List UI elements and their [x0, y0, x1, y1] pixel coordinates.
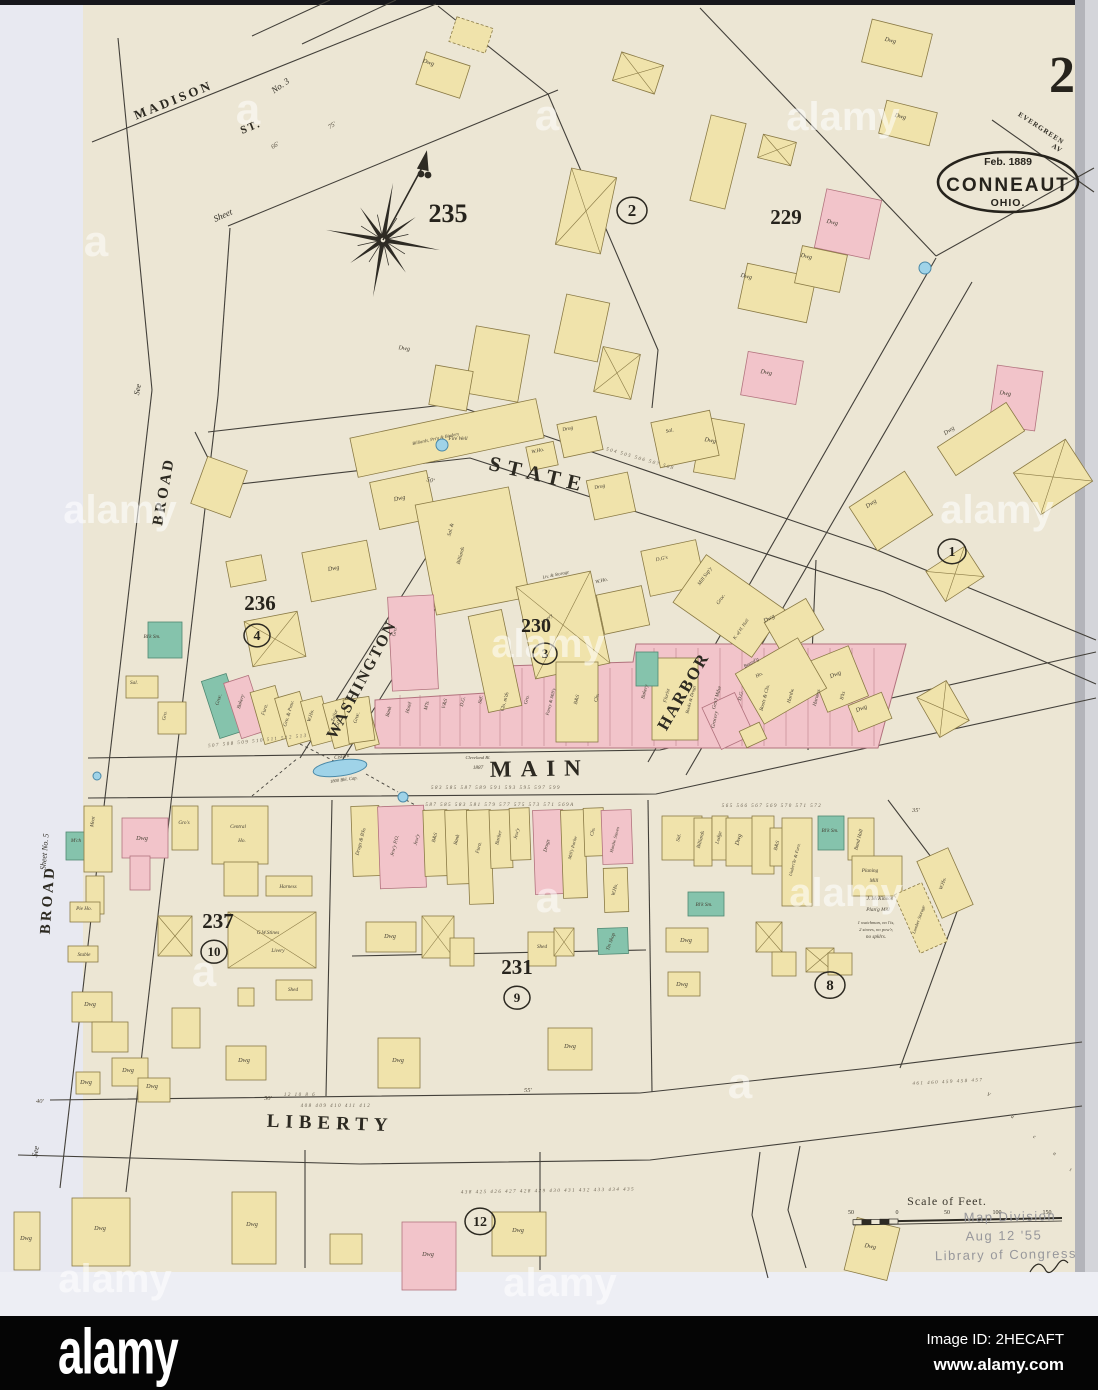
scale-segment: [880, 1219, 889, 1224]
building-label: Harness: [278, 884, 296, 890]
building-rect: [772, 952, 796, 976]
building-rect: [92, 1022, 128, 1052]
building-label: Dwg: [135, 835, 148, 842]
building-rect: [636, 652, 658, 686]
block-number: 2: [628, 201, 637, 220]
building: [422, 916, 454, 958]
address-numbers: 408 409 410 411 412: [301, 1104, 372, 1109]
map-date: Feb. 1889: [984, 156, 1032, 168]
building-rect: [138, 1078, 170, 1102]
building: [772, 952, 796, 976]
building-rect: [465, 326, 530, 402]
building-label: Pie Ho.: [75, 906, 92, 912]
building-rect: [429, 365, 473, 411]
map-state: OHIO.: [991, 197, 1026, 209]
building: [228, 912, 316, 968]
building: [232, 1192, 276, 1264]
building-label: M'ch: [70, 838, 82, 844]
building: [148, 622, 182, 658]
building-rect: [388, 595, 439, 691]
library-stamp: Aug 12 '55: [965, 1227, 1042, 1243]
alamy-footer-bar: alamy Image ID: 2HECAFT www.alamy.com: [0, 1316, 1098, 1390]
scale-segment: [889, 1219, 898, 1224]
building: [130, 856, 150, 890]
alamy-watermark-letter: a: [728, 1059, 753, 1108]
street-name: MAIN: [490, 755, 590, 782]
dimension-label: 40': [36, 1098, 45, 1105]
building-label: Bl'k Sm.: [822, 828, 839, 834]
building-label: G.W.Stines: [257, 930, 280, 936]
well-dot: [919, 262, 931, 274]
building-label: Bl'k Sm.: [696, 902, 713, 908]
building: [429, 365, 473, 411]
building-label: Dwg: [19, 1235, 32, 1242]
building-label: Stable: [78, 952, 92, 958]
photo-top-edge: [0, 0, 1098, 5]
building-rect: [172, 806, 198, 850]
map-city: CONNEAUT: [946, 175, 1070, 196]
block-number: 231: [501, 955, 533, 979]
building: [172, 806, 198, 850]
dimension-label: 50': [264, 1095, 273, 1102]
building-rect: [351, 806, 381, 877]
building-label: Livery: [270, 948, 285, 954]
sanborn-map: MADISONST.No. 3STATEMAINLIBERTYBROADBROA…: [0, 0, 1098, 1390]
alamy-watermark: alamy: [58, 1257, 172, 1301]
library-stamp: Library of Congress: [935, 1246, 1077, 1263]
building-rect: [330, 1234, 362, 1264]
building-label: Dwg: [679, 937, 692, 944]
alamy-watermark-letter: a: [84, 217, 109, 266]
alamy-watermark-letter: a: [236, 85, 261, 134]
building: [351, 806, 381, 877]
building-rect: [84, 806, 112, 872]
building-label: Sal.: [130, 680, 138, 686]
building-label: Gro's: [178, 820, 189, 826]
scale-tick: 0: [896, 1210, 899, 1216]
building-rect: [70, 902, 100, 922]
scale-segment: [853, 1220, 862, 1225]
building-rect: [378, 805, 427, 889]
building: [212, 806, 268, 864]
footer-image-info: Image ID: 2HECAFT www.alamy.com: [926, 1329, 1064, 1377]
building: [741, 351, 804, 404]
building: [388, 595, 439, 691]
image-id-text: Image ID: 2HECAFT: [926, 1329, 1064, 1352]
building-rect: [130, 856, 150, 890]
building-label: Dwg: [245, 1221, 258, 1228]
well-dot: [398, 792, 408, 802]
building-label: Dwg: [675, 981, 688, 988]
building: [378, 805, 427, 889]
alamy-url-text: www.alamy.com: [926, 1352, 1064, 1378]
building-rect: [212, 806, 268, 864]
street-name: LIBERTY: [266, 1111, 394, 1136]
block-number: 229: [770, 205, 802, 229]
building-rect: [72, 1198, 130, 1266]
building-rect: [586, 472, 635, 520]
building: [554, 928, 574, 956]
alamy-watermark: alamy: [63, 488, 177, 532]
building-rect: [492, 1212, 546, 1256]
address-numbers: 587 585 583 581 579 577 575 573 571 569A: [425, 803, 574, 808]
building: [330, 1234, 362, 1264]
block-number: 8: [826, 978, 834, 994]
building: [138, 1078, 170, 1102]
alamy-watermark-letter: a: [535, 91, 560, 140]
building-label: Bl'k Sm.: [144, 634, 161, 640]
sheet-page-number: 2: [1049, 47, 1075, 104]
building-label: Dwg: [421, 1251, 434, 1258]
building-label: Dwg: [237, 1057, 250, 1064]
building-label: Shed: [288, 987, 298, 993]
alamy-watermark-letter: a: [536, 873, 561, 922]
library-stamp: Map Division: [964, 1208, 1057, 1225]
compass-north-fleur: [418, 171, 425, 178]
building-label: Dwg: [121, 1067, 134, 1074]
building: [70, 902, 100, 922]
building-label: Dwg: [391, 1057, 404, 1064]
building-rect: [172, 1008, 200, 1048]
address-numbers: 12 10 8 6: [284, 1093, 316, 1098]
alamy-watermark: alamy: [503, 1261, 617, 1305]
building-rect: [814, 189, 881, 259]
building-rect: [232, 1192, 276, 1264]
scale-segment: [871, 1219, 880, 1224]
block-number: 12: [473, 1215, 487, 1230]
building-rect: [450, 938, 474, 966]
compass-north-fleur: [425, 172, 432, 179]
building-label: Fire Well: [447, 436, 468, 442]
alamy-watermark: alamy: [789, 871, 903, 915]
building-rect: [741, 351, 804, 404]
building: [172, 1008, 200, 1048]
building: [84, 806, 112, 872]
screenshot-stage: MADISONST.No. 3STATEMAINLIBERTYBROADBROA…: [0, 0, 1098, 1390]
building-label: Dwg: [383, 933, 396, 940]
building-label: Ho.: [237, 838, 246, 844]
block-number: 1: [949, 545, 956, 560]
alamy-watermark: alamy: [491, 622, 605, 666]
building: [158, 916, 192, 956]
dimension-label: 35': [911, 807, 921, 814]
building: [465, 326, 530, 402]
page-edge-right: [1085, 0, 1098, 1390]
well-dot: [93, 772, 101, 780]
address-numbers: 565 566 567 569 570 571 572: [722, 804, 823, 809]
building: [224, 862, 258, 896]
page-edge-right-shadow: [1075, 0, 1085, 1390]
alamy-watermark-letter: a: [192, 947, 217, 996]
alamy-watermark: alamy: [786, 95, 900, 139]
building-label: Dwg: [145, 1083, 158, 1090]
block-number: 237: [202, 909, 234, 933]
building: [238, 988, 254, 1006]
building: [92, 1022, 128, 1052]
building-label: Dwg: [83, 1001, 96, 1008]
building: [492, 1212, 546, 1256]
scale-tick: 50: [848, 1210, 854, 1216]
building-label: Central: [230, 824, 246, 830]
building-label: Cleveland Bl.: [465, 755, 490, 760]
building-label: no spklrs.: [866, 934, 886, 940]
building-rect: [238, 988, 254, 1006]
building-rect: [148, 622, 182, 658]
dimension-label: 55': [524, 1087, 533, 1094]
block-number: 4: [254, 629, 261, 644]
building-label: Dwg: [563, 1043, 576, 1050]
building-rect: [224, 862, 258, 896]
address-numbers: 583 585 587 589 591 593 595 597 599: [431, 786, 561, 791]
building-label: Dwg: [511, 1227, 524, 1234]
building-label: Shed: [537, 944, 547, 950]
alamy-logo: alamy: [58, 1317, 178, 1390]
block-number: 235: [429, 199, 468, 228]
building: [756, 922, 782, 952]
building: [72, 1198, 130, 1266]
building-label: Dwg: [93, 1225, 106, 1232]
building: [450, 938, 474, 966]
building: [814, 189, 881, 259]
building-label: 1887: [473, 765, 484, 771]
block-number: 9: [514, 990, 521, 1005]
block-number: 236: [244, 591, 276, 615]
scale-label: Scale of Feet.: [907, 1194, 987, 1208]
scale-segment: [862, 1220, 871, 1225]
building: [586, 472, 635, 520]
well-dot: [436, 439, 448, 451]
building-label: Dwg: [79, 1079, 92, 1086]
alamy-watermark: alamy: [940, 488, 1054, 532]
scale-tick: 50: [944, 1210, 950, 1216]
building: [636, 652, 658, 686]
